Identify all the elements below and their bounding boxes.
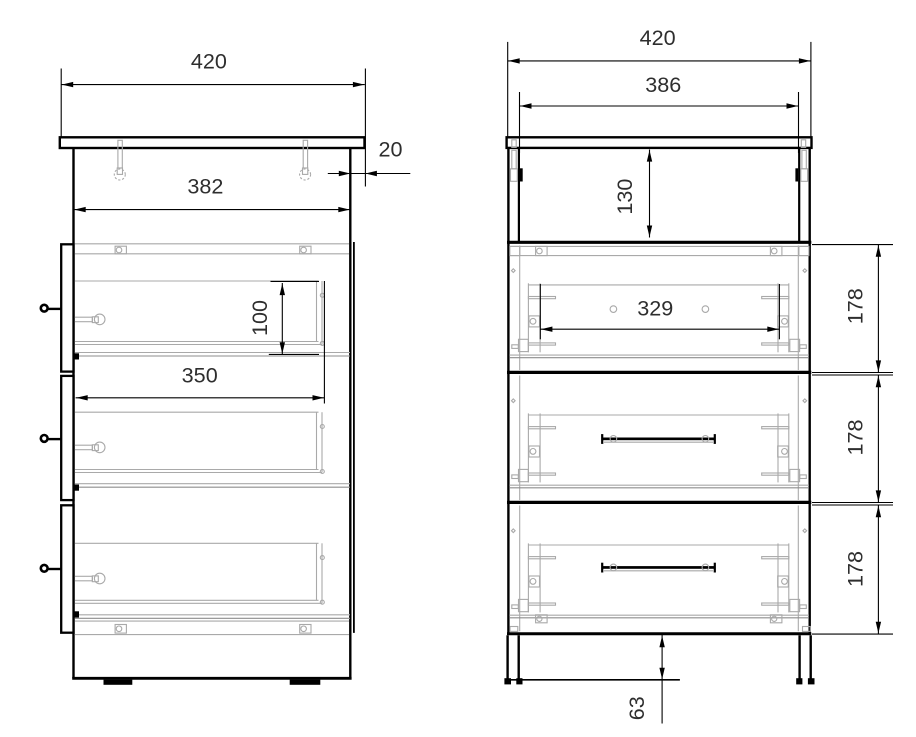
svg-text:178: 178 (843, 288, 868, 324)
svg-text:329: 329 (637, 296, 673, 321)
svg-text:130: 130 (612, 179, 637, 215)
svg-text:178: 178 (843, 419, 868, 455)
svg-text:420: 420 (191, 49, 227, 74)
svg-text:350: 350 (182, 363, 218, 388)
svg-text:386: 386 (645, 72, 681, 97)
svg-text:100: 100 (247, 300, 272, 336)
svg-text:382: 382 (187, 174, 223, 199)
svg-text:63: 63 (624, 696, 649, 720)
svg-text:420: 420 (640, 25, 676, 50)
svg-text:20: 20 (378, 137, 402, 162)
svg-text:178: 178 (843, 551, 868, 587)
